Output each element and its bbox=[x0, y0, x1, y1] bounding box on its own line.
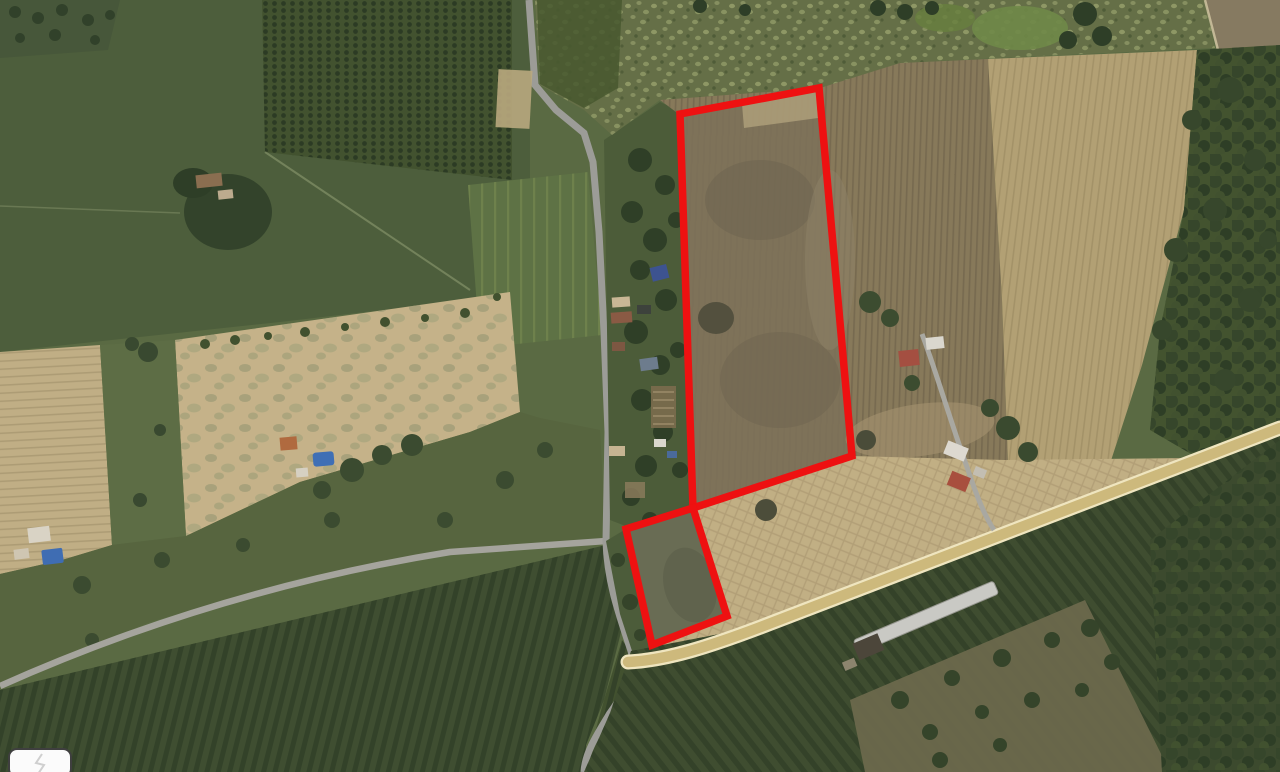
junction-trees bbox=[634, 629, 646, 641]
bright-patch-2 bbox=[915, 4, 975, 32]
grove-shed-blue bbox=[667, 451, 677, 458]
farm-shed-west bbox=[13, 548, 29, 560]
grove-roof-blue-gray bbox=[639, 357, 658, 371]
scrub-band-trees bbox=[324, 512, 340, 528]
sparse-grove-trees bbox=[993, 738, 1007, 752]
tan-main-bush-row bbox=[200, 339, 210, 349]
north-tree-clumps bbox=[1073, 2, 1097, 26]
map-control-glyph bbox=[28, 752, 52, 772]
parcel-mottle-2 bbox=[720, 332, 840, 428]
roadside-grove-trees bbox=[643, 228, 667, 252]
roadside-grove-trees bbox=[621, 201, 643, 223]
green-strip-trees bbox=[138, 342, 158, 362]
north-tree-clumps bbox=[1092, 26, 1112, 46]
scrub-band-trees bbox=[496, 471, 514, 489]
mid-house-red-roof bbox=[898, 349, 920, 367]
sparse-grove-trees bbox=[944, 670, 960, 686]
woods-east-blobs bbox=[1244, 149, 1266, 171]
tan-main-bush-row bbox=[493, 293, 501, 301]
scrub-band-trees bbox=[236, 538, 250, 552]
corner-grove-dots bbox=[9, 6, 21, 18]
farm-barn-west bbox=[27, 526, 51, 544]
north-tree-clumps bbox=[897, 4, 913, 20]
sparse-grove-trees bbox=[932, 752, 948, 768]
sparse-grove-trees bbox=[1044, 632, 1060, 648]
scrub-band-trees bbox=[340, 458, 364, 482]
scrub-band-trees bbox=[401, 434, 423, 456]
terrain-layers bbox=[0, 0, 1280, 772]
tan-main-bush-row bbox=[380, 317, 390, 327]
tan-west-tex bbox=[0, 345, 112, 574]
junction-trees bbox=[611, 553, 625, 567]
tan-main-bush-row bbox=[300, 327, 310, 337]
sparse-grove-trees bbox=[1104, 654, 1120, 670]
roadside-grove-trees bbox=[670, 342, 686, 358]
woods-east-blobs bbox=[1182, 110, 1202, 130]
grove-house-brown bbox=[611, 311, 633, 323]
corner-grove-dots bbox=[82, 14, 94, 26]
roadside-trees-east bbox=[981, 399, 999, 417]
grove-shed-2 bbox=[612, 342, 625, 351]
woods-east-blobs bbox=[1164, 238, 1188, 262]
map-control-card[interactable] bbox=[8, 748, 72, 772]
sparse-grove-trees bbox=[975, 705, 989, 719]
woods-east-blobs bbox=[1238, 288, 1262, 312]
scrub-band-trees bbox=[372, 445, 392, 465]
roadside-trees-east bbox=[996, 416, 1020, 440]
grove-dirt-patch bbox=[625, 482, 645, 498]
green-strip-trees bbox=[125, 337, 139, 351]
junction-trees bbox=[622, 594, 638, 610]
sparse-grove-trees bbox=[1024, 692, 1040, 708]
woods-east-blobs bbox=[1259, 231, 1277, 249]
green-strip-fields bbox=[100, 340, 186, 545]
north-tree-clumps bbox=[739, 4, 751, 16]
woods-east-blobs bbox=[1214, 369, 1236, 391]
sparse-grove-trees bbox=[922, 724, 938, 740]
woods-east-blobs bbox=[1217, 77, 1243, 103]
swimming-pool-east bbox=[312, 451, 334, 467]
roadside-grove-trees bbox=[628, 148, 652, 172]
green-strip-trees bbox=[133, 493, 147, 507]
checker-tree-2 bbox=[856, 430, 876, 450]
bright-patch-1 bbox=[972, 6, 1068, 50]
scrub-band-trees bbox=[313, 481, 331, 499]
roadside-grove-trees bbox=[635, 455, 657, 477]
swimming-pool-west bbox=[41, 548, 64, 565]
north-tree-clumps bbox=[1059, 31, 1077, 49]
woods-east-blobs bbox=[1203, 198, 1227, 222]
corner-grove-dots bbox=[49, 29, 61, 41]
north-tree-clumps bbox=[870, 0, 886, 16]
parcel-mottle-1 bbox=[705, 160, 815, 240]
scrub-band-trees bbox=[73, 576, 91, 594]
roadside-grove-trees bbox=[655, 289, 677, 311]
tan-main-bush-row bbox=[264, 332, 272, 340]
roadside-grove-trees bbox=[631, 389, 653, 411]
pool-house-shed bbox=[296, 467, 309, 477]
roadside-grove-trees bbox=[672, 462, 688, 478]
grove-shed-3 bbox=[609, 446, 625, 456]
pool-house-orange-roof bbox=[280, 436, 298, 450]
mid-house-trees bbox=[859, 291, 881, 313]
north-tree-clumps bbox=[925, 1, 939, 15]
tan-main-bush-row bbox=[341, 323, 349, 331]
scrub-band-trees bbox=[537, 442, 553, 458]
sparse-grove-trees bbox=[1075, 683, 1089, 697]
checker-tree-1 bbox=[755, 499, 777, 521]
parcel-tree-shadow bbox=[698, 302, 734, 334]
sparse-grove-trees bbox=[993, 649, 1011, 667]
satellite-map-viewport[interactable] bbox=[0, 0, 1280, 772]
sparse-grove-trees bbox=[1081, 619, 1099, 637]
corner-grove-dots bbox=[56, 4, 68, 16]
grove-dark-shed bbox=[637, 305, 651, 314]
grove-shed-1 bbox=[612, 296, 631, 307]
tan-main-bush-row bbox=[460, 308, 470, 318]
green-strip-trees bbox=[154, 424, 166, 436]
corner-grove-dots bbox=[32, 12, 44, 24]
mid-house-trees bbox=[904, 375, 920, 391]
farmstead-shed bbox=[218, 189, 234, 200]
mid-house-trees bbox=[881, 309, 899, 327]
roadside-grove-trees bbox=[624, 320, 648, 344]
roadside-tan-patch bbox=[496, 69, 533, 129]
sparse-grove-trees bbox=[891, 691, 909, 709]
scrub-band-trees bbox=[154, 552, 170, 568]
orchard-topleft-rows bbox=[262, 0, 512, 180]
corner-grove-dots bbox=[105, 10, 115, 20]
corner-grove-dots bbox=[90, 35, 100, 45]
mid-house-white bbox=[925, 336, 944, 350]
woods-east-blobs bbox=[1152, 320, 1172, 340]
tan-main-bush-row bbox=[421, 314, 429, 322]
satellite-canvas bbox=[0, 0, 1280, 772]
roadside-grove-trees bbox=[630, 260, 650, 280]
roadside-trees-east bbox=[1018, 442, 1038, 462]
tan-main-bush-row bbox=[230, 335, 240, 345]
farmstead-house bbox=[195, 173, 222, 189]
grove-shed-white bbox=[654, 439, 666, 447]
corner-grove-dots bbox=[15, 33, 25, 43]
roadside-grove-trees bbox=[655, 175, 675, 195]
scrub-band-trees bbox=[437, 512, 453, 528]
